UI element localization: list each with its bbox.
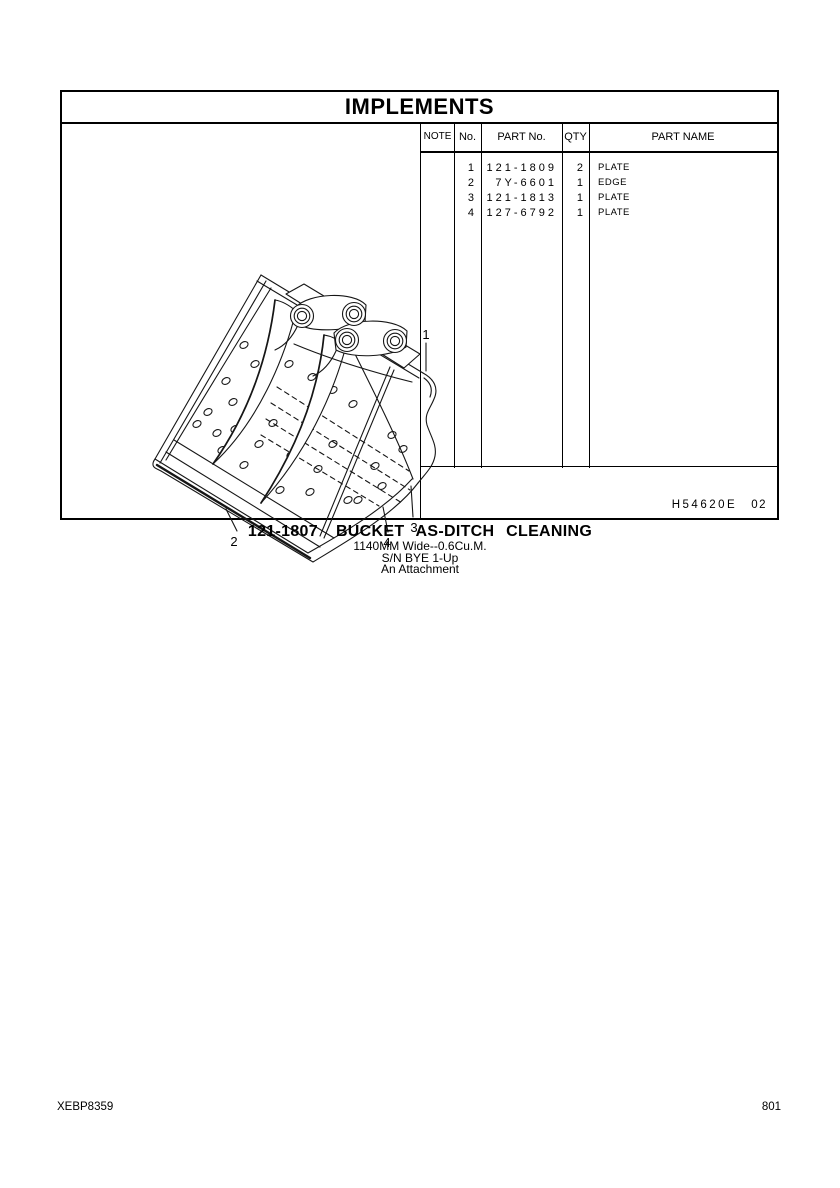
- document-code: XEBP8359: [57, 1101, 113, 1113]
- col-header-part-name: PART NAME: [589, 131, 777, 143]
- col-header-no: No.: [454, 131, 481, 143]
- cell-qty: 1: [562, 192, 589, 204]
- side-panel-wavy-edge: [418, 373, 436, 483]
- cell-part-name: PLATE: [589, 162, 777, 173]
- page-number: 801: [762, 1101, 781, 1113]
- cell-qty: 2: [562, 162, 589, 174]
- hidden-edge-dash: [261, 435, 379, 506]
- back-wall-curve: [166, 288, 271, 460]
- title-bar: IMPLEMENTS: [62, 92, 777, 124]
- table-header-row: NOTE No. PART No. QTY PART NAME: [421, 122, 777, 153]
- main-frame: IMPLEMENTS NOTE No. PART No. QTY PART NA…: [60, 90, 779, 520]
- cell-part-no: 7Y-6601: [481, 177, 562, 189]
- cell-part-name: EDGE: [589, 177, 777, 188]
- cell-no: 2: [454, 177, 481, 189]
- caption-attachment-line: An Attachment: [0, 564, 840, 576]
- col-header-qty: QTY: [562, 131, 589, 143]
- side-panel-edge-accent: [424, 378, 431, 397]
- cell-part-name: PLATE: [589, 207, 777, 218]
- cell-no: 3: [454, 192, 481, 204]
- figure-caption: 121-1807BUCKET AS-DITCH CLEANING 1140MM …: [0, 523, 840, 576]
- cell-no: 1: [454, 162, 481, 174]
- cell-part-no: 127-6792: [481, 207, 562, 219]
- col-header-part-no: PART No.: [481, 131, 562, 143]
- callout-1: 1: [422, 327, 429, 342]
- table-row: 3 121-1813 1 PLATE: [421, 190, 777, 205]
- cell-qty: 1: [562, 207, 589, 219]
- table-row: 2 7Y-6601 1 EDGE: [421, 175, 777, 190]
- cell-qty: 1: [562, 177, 589, 189]
- hidden-edge-dash: [277, 387, 409, 471]
- side-panel-corner: [355, 354, 413, 479]
- cell-part-no: 121-1809: [481, 162, 562, 174]
- bucket-left-edge: [155, 275, 261, 459]
- caption-title: BUCKET AS-DITCH CLEANING: [336, 523, 592, 540]
- cell-part-name: PLATE: [589, 192, 777, 203]
- cell-part-no: 121-1813: [481, 192, 562, 204]
- floor-right-fold-inner: [324, 370, 394, 538]
- drawing-code: H54620E: [672, 499, 737, 511]
- drawing-number: H54620E02: [672, 499, 767, 511]
- table-row: 1 121-1809 2 PLATE: [421, 160, 777, 175]
- catalog-page: IMPLEMENTS NOTE No. PART No. QTY PART NA…: [0, 0, 840, 1188]
- drawing-revision: 02: [751, 499, 767, 511]
- rib-plate-left: [213, 300, 296, 464]
- page-title: IMPLEMENTS: [345, 94, 494, 120]
- caption-part-number: 121-1807: [248, 523, 318, 540]
- col-header-note: NOTE: [421, 131, 454, 142]
